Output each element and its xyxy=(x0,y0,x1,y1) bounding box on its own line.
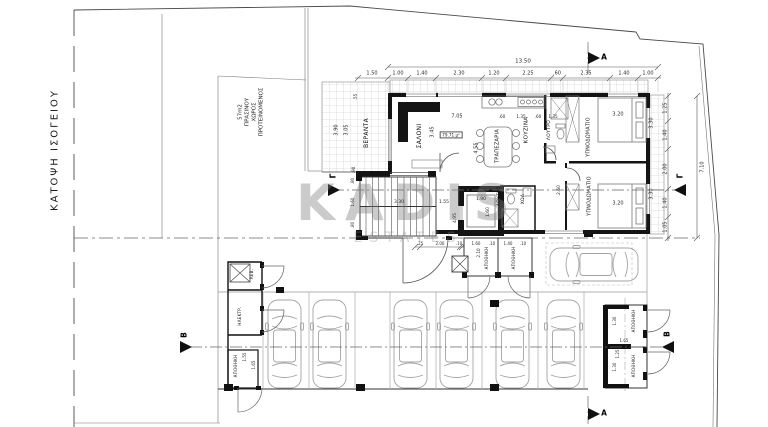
car-icon xyxy=(392,300,430,388)
section-marker-a-icon xyxy=(588,52,600,64)
sofa-icon xyxy=(398,102,440,142)
section-marker-b-icon xyxy=(180,341,192,353)
door-arc xyxy=(648,310,670,374)
section-marker-b-icon xyxy=(662,341,674,353)
dining-table-icon xyxy=(477,127,520,167)
floor-plan-drawing: KADIS ESTATES ΚΑΤΟΨΗ ΙΣΟΓΕΙΟΥ ΠΡΟΤΕΙΝΟΜΕ… xyxy=(0,0,768,427)
parking-stall xyxy=(546,243,632,285)
section-marker-gamma-icon xyxy=(674,184,686,196)
car-icon xyxy=(311,300,349,388)
bed-icon xyxy=(598,98,646,142)
tv-bench-icon xyxy=(412,160,442,168)
section-marker-a-icon xyxy=(588,408,600,420)
car-icon xyxy=(438,300,476,388)
bed-icon xyxy=(598,184,646,228)
page-title: ΚΑΤΟΨΗ ΙΣΟΓΕΙΟΥ xyxy=(50,89,61,211)
storage-rooms-mid xyxy=(452,238,534,298)
door-arc xyxy=(468,276,530,298)
storage-rooms-right xyxy=(603,305,670,388)
car-icon xyxy=(494,300,532,388)
car-icon xyxy=(550,246,638,284)
car-icon xyxy=(545,300,583,388)
car-icon xyxy=(266,300,304,388)
sink-icon xyxy=(523,146,555,196)
watermark-sub: ESTATES xyxy=(354,230,463,246)
watermark: KADIS xyxy=(296,174,520,232)
parking-stall-lines xyxy=(263,292,584,389)
kitchen-counter-icon xyxy=(482,96,546,108)
